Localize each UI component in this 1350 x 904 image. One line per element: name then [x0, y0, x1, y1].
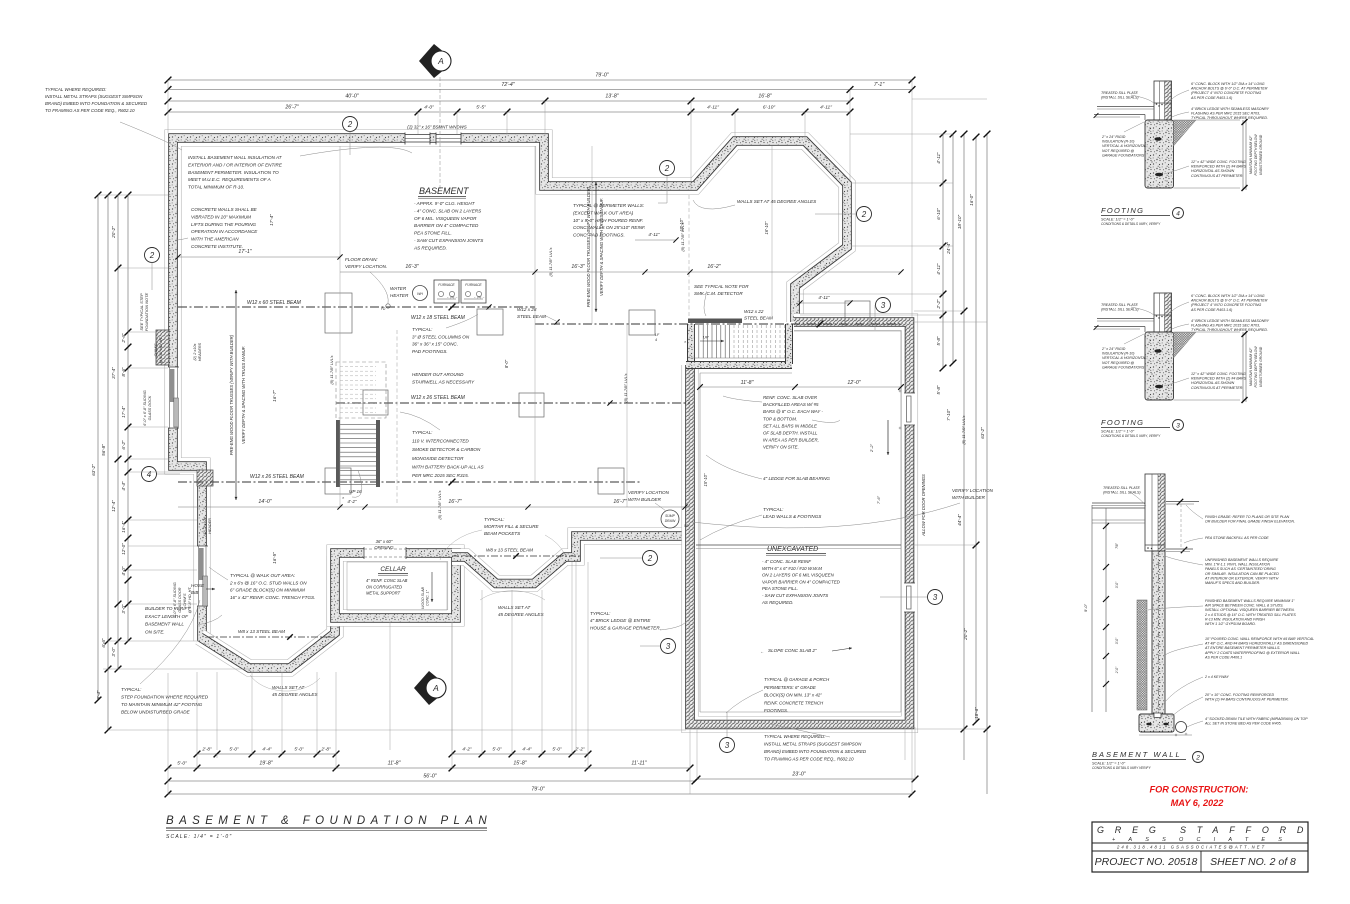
svg-text:TYPICAL @ GARAGE & PORCH: TYPICAL @ GARAGE & PORCH — [764, 677, 830, 682]
svg-text:3'-0": 3'-0" — [1115, 637, 1119, 644]
svg-text:NOT REQUIRED @: NOT REQUIRED @ — [1102, 149, 1135, 153]
svg-text:HOSE: HOSE — [191, 583, 205, 588]
svg-text:WITH THE AMERICAN: WITH THE AMERICAN — [191, 237, 239, 242]
svg-text:CHIM’S: CHIM’S — [154, 343, 158, 357]
svg-text:CONCRETE INSTITUTE.: CONCRETE INSTITUTE. — [191, 244, 243, 249]
svg-text:- SAW CUT EXPANSION JOINTS: - SAW CUT EXPANSION JOINTS — [762, 593, 828, 598]
svg-text:2: 2 — [861, 210, 867, 219]
svg-text:OR BUILDER FOR FINAL GRADE FIN: OR BUILDER FOR FINAL GRADE FINISH ELEVAT… — [1205, 520, 1295, 524]
svg-text:4'-0": 4'-0" — [424, 105, 434, 111]
svg-text:TREATED SILL PLATE: TREATED SILL PLATE — [1101, 303, 1139, 307]
svg-text:UNDISTURBED GROUND: UNDISTURBED GROUND — [1259, 134, 1263, 175]
svg-text:4'-0": 4'-0" — [121, 566, 126, 576]
svg-text:7'-6": 7'-6" — [876, 495, 881, 504]
svg-text:BRAND) EMBED INTO FOUNDATION &: BRAND) EMBED INTO FOUNDATION & SECURED — [764, 749, 867, 754]
svg-text:W12 x 60 STEEL BEAM: W12 x 60 STEEL BEAM — [247, 300, 302, 306]
svg-text:2'-8": 2'-8" — [201, 747, 212, 752]
svg-text:2: 2 — [149, 251, 155, 260]
svg-text:PEA STONE FILL.: PEA STONE FILL. — [414, 231, 452, 236]
svg-text:AT 48" O.C. AND #4 BARS HORIZO: AT 48" O.C. AND #4 BARS HORIZONTALLY AS … — [1204, 642, 1309, 646]
svg-text:WITH BUILDER: WITH BUILDER — [952, 495, 986, 500]
svg-text:OR SIMILAR. INSULATION CAN BE: OR SIMILAR. INSULATION CAN BE PLACED — [1205, 572, 1279, 576]
svg-text:16'-3": 16'-3" — [405, 264, 419, 270]
svg-text:20'-2": 20'-2" — [111, 226, 116, 239]
svg-text:SCALE: 1/2" = 1'-0": SCALE: 1/2" = 1'-0" — [1101, 218, 1135, 222]
svg-text:16'-8": 16'-8" — [758, 94, 772, 100]
svg-text:STAIRWELL AS NECESSARY: STAIRWELL AS NECESSARY — [412, 379, 475, 384]
svg-text:4" RENF. CONC SLAB: 4" RENF. CONC SLAB — [366, 578, 408, 583]
svg-text:CONTINUOUS AT PERIMETER.: CONTINUOUS AT PERIMETER. — [1191, 174, 1243, 178]
svg-text:SUMP: SUMP — [665, 514, 676, 518]
svg-text:EXTERIOR AND / OR INTERIOR OF: EXTERIOR AND / OR INTERIOR OF ENTIRE — [188, 162, 283, 167]
svg-text:16'-7": 16'-7" — [613, 499, 627, 505]
svg-text:TYPICAL THROUGHOUT WHERE REQUI: TYPICAL THROUGHOUT WHERE REQUIRED. — [1191, 328, 1268, 332]
svg-text:AS PER CODE R403.1.6): AS PER CODE R403.1.6) — [1190, 96, 1232, 100]
svg-text:TYPICAL:: TYPICAL: — [121, 687, 142, 692]
svg-text:2 x 4 STUDS @ 16" O.C. WITH T: 2 x 4 STUDS @ 16" O.C. WITH TREATED SILL… — [1204, 613, 1296, 617]
svg-text:REINFORCED WITH (2) #4 BARS: REINFORCED WITH (2) #4 BARS — [1191, 165, 1247, 169]
svg-text:15'-8": 15'-8" — [513, 761, 527, 767]
svg-text:6'-10": 6'-10" — [936, 208, 941, 220]
svg-text:24'-4": 24'-4" — [946, 242, 951, 255]
svg-text:16'-2": 16'-2" — [707, 264, 721, 270]
svg-text:HENDER OUT AROUND: HENDER OUT AROUND — [412, 372, 464, 377]
svg-text:WITH 1 1/2" GYPSUM BOARD.: WITH 1 1/2" GYPSUM BOARD. — [1205, 622, 1256, 626]
svg-text:VERTICAL & HORIZONTAL,: VERTICAL & HORIZONTAL, — [1102, 144, 1148, 148]
svg-text:OF 6 MIL. VISQUEEN VAPOR: OF 6 MIL. VISQUEEN VAPOR — [414, 216, 477, 221]
svg-text:PEA STONE FILL.: PEA STONE FILL. — [762, 586, 798, 591]
svg-text:3: 3 — [666, 642, 671, 651]
svg-text:2: 2 — [647, 554, 653, 563]
svg-text:PAD FOOTINGS.: PAD FOOTINGS. — [412, 349, 448, 354]
svg-text:A: A — [437, 56, 444, 66]
svg-text:- 4" CONC. SLAB REINF: - 4" CONC. SLAB REINF — [762, 559, 811, 564]
svg-text:4'-11": 4'-11" — [936, 152, 941, 164]
svg-text:2'-8": 2'-8" — [320, 747, 331, 752]
svg-text:13'-8": 13'-8" — [605, 94, 619, 100]
svg-text:W8 x 13 STEEL BEAM: W8 x 13 STEEL BEAM — [486, 548, 533, 553]
svg-text:TYPICAL:: TYPICAL: — [412, 430, 433, 435]
svg-text:36" x 60": 36" x 60" — [376, 539, 393, 544]
svg-text:4'-11": 4'-11" — [820, 105, 832, 111]
svg-text:(2) 2 x10s: (2) 2 x10s — [203, 517, 207, 534]
svg-text:GREG STAFFORD: GREG STAFFORD — [1097, 825, 1314, 835]
svg-text:4'-11": 4'-11" — [707, 105, 719, 111]
svg-text:INSTALL OPTIONAL VISQUEEN BARR: INSTALL OPTIONAL VISQUEEN BARRIER BETWEE… — [1205, 608, 1295, 612]
svg-text:8'-6": 8'-6" — [121, 367, 126, 377]
svg-text:TOTAL MINIMUM OF R-10.: TOTAL MINIMUM OF R-10. — [188, 185, 244, 190]
svg-text:10" x 9'-0" HIGH POURED REINF.: 10" x 9'-0" HIGH POURED REINF. — [573, 218, 644, 223]
svg-text:OPENING: OPENING — [374, 545, 394, 550]
svg-text:6'-10": 6'-10" — [763, 105, 776, 111]
svg-text:2'-2": 2'-2" — [574, 747, 585, 752]
svg-text:3" Ø STEEL COLUMNS ON: 3" Ø STEEL COLUMNS ON — [412, 334, 470, 339]
svg-text:← (m) →: ← (m) → — [447, 295, 459, 299]
svg-text:GLASS DOOR: GLASS DOOR — [178, 587, 182, 612]
svg-text:MANUF’S SPECS AND BUILDER.: MANUF’S SPECS AND BUILDER. — [1205, 581, 1260, 585]
svg-text:SHEET NO. 2 of 8: SHEET NO. 2 of 8 — [1210, 856, 1296, 868]
svg-text:CHIM’S: CHIM’S — [183, 593, 187, 607]
svg-text:R-13 MIN. INSULATION AND FINIS: R-13 MIN. INSULATION AND FINISH — [1205, 617, 1265, 621]
svg-text:RENF. CONC. SLAB OVER: RENF. CONC. SLAB OVER — [763, 395, 818, 400]
svg-text:19'-8": 19'-8" — [259, 761, 273, 767]
svg-text:FURNACE: FURNACE — [465, 283, 482, 287]
svg-text:VERIFY ON SITE.: VERIFY ON SITE. — [763, 445, 799, 450]
svg-text:METAL SUPPORT: METAL SUPPORT — [366, 591, 401, 596]
svg-text:63'-2": 63'-2" — [91, 464, 96, 476]
svg-text:REINF. CONCRETE TRENCH: REINF. CONCRETE TRENCH — [764, 700, 824, 705]
svg-text:BASEMENT & FOUNDATION PLAN: BASEMENT & FOUNDATION PLAN — [166, 815, 492, 827]
svg-text:14'-0": 14'-0" — [258, 499, 272, 505]
svg-text:- APPRX. 9'-0" CLG. HEIGHT: - APPRX. 9'-0" CLG. HEIGHT — [414, 201, 476, 206]
svg-text:3'-0": 3'-0" — [121, 604, 126, 614]
svg-text:4'-11": 4'-11" — [818, 295, 830, 300]
svg-text:W12 x 28: W12 x 28 — [517, 307, 537, 312]
svg-text:2 x 6's @ 16" O.C. STUD WALLS: 2 x 6's @ 16" O.C. STUD WALLS ON — [229, 580, 307, 585]
svg-text:HORIZONTAL AS SHOWN: HORIZONTAL AS SHOWN — [1191, 169, 1235, 173]
svg-text:SLOPE CONC SLAB 2": SLOPE CONC SLAB 2" — [768, 648, 817, 653]
svg-text:3'-0": 3'-0" — [111, 647, 116, 657]
svg-text:3: 3 — [881, 301, 886, 310]
svg-text:NOT REQUIRED @: NOT REQUIRED @ — [1102, 361, 1135, 365]
svg-text:3: 3 — [1176, 422, 1180, 429]
svg-text:4'-4": 4'-4" — [522, 747, 532, 752]
svg-text:CONC. WALLS ON 25"x10" REINF.: CONC. WALLS ON 25"x10" REINF. — [573, 225, 646, 230]
svg-text:5'-0": 5'-0" — [229, 747, 239, 752]
svg-text:2" x 24" RIGID: 2" x 24" RIGID — [1101, 135, 1126, 139]
svg-text:63'-2": 63'-2" — [980, 427, 985, 439]
svg-text:4" SOCKED DRAIN TILE WITH FABR: 4" SOCKED DRAIN TILE WITH FABRIC (MIRADR… — [1205, 717, 1308, 721]
svg-text:SD: SD — [684, 524, 689, 528]
svg-text:FOOTING DEPTH BELOW: FOOTING DEPTH BELOW — [1254, 346, 1258, 388]
svg-text:W12 x 26 STEEL BEAM: W12 x 26 STEEL BEAM — [411, 395, 466, 401]
svg-text:12'-4": 12'-4" — [111, 500, 116, 512]
svg-text:ON 2 LAYERS OF 6 MIL VISQUEEN: ON 2 LAYERS OF 6 MIL VISQUEEN — [762, 573, 835, 578]
svg-text:INSTALL BASEMENT WALL INSULATI: INSTALL BASEMENT WALL INSULATION AT — [188, 155, 283, 160]
svg-text:TYPICAL:: TYPICAL: — [484, 517, 505, 522]
svg-text:TREATED SILL PLATE: TREATED SILL PLATE — [1101, 91, 1139, 95]
svg-text:(INSTALL SILL SEALS): (INSTALL SILL SEALS) — [1103, 491, 1141, 495]
svg-text:HEATER: HEATER — [390, 293, 409, 298]
svg-text:16'-5": 16'-5" — [272, 552, 277, 564]
svg-text:W8 x 13 STEEL BEAM: W8 x 13 STEEL BEAM — [238, 629, 285, 634]
svg-text:CONTINUOUS AT PERIMETER.: CONTINUOUS AT PERIMETER. — [1191, 386, 1243, 390]
svg-text:6" GRADE BLOCK(S) ON MINIMUM: 6" GRADE BLOCK(S) ON MINIMUM — [230, 588, 305, 593]
svg-text:BASEMENT WALL: BASEMENT WALL — [145, 622, 184, 627]
svg-text:(2) 2 x10s: (2) 2 x10s — [193, 343, 197, 360]
svg-text:MORTAR FILL & SECURE: MORTAR FILL & SECURE — [484, 524, 540, 529]
svg-text:5'-5": 5'-5" — [476, 105, 486, 111]
svg-text:7'-1": 7'-1" — [874, 82, 885, 88]
svg-text:2: 2 — [1195, 754, 1200, 761]
svg-text:UP: UP — [703, 335, 709, 340]
svg-text:17'-4": 17'-4" — [121, 406, 126, 418]
svg-text:TYPICAL WHERE REQUIRED:: TYPICAL WHERE REQUIRED: — [45, 87, 107, 92]
svg-text:FOR CONSTRUCTION:: FOR CONSTRUCTION: — [1149, 785, 1248, 795]
svg-text:BLOCK(S) ON MIN. 13" x 42": BLOCK(S) ON MIN. 13" x 42" — [764, 693, 822, 698]
svg-text:11'-8": 11'-8" — [741, 380, 755, 386]
svg-text:6'-2": 6'-2" — [121, 440, 126, 450]
svg-text:10'-10": 10'-10" — [679, 218, 684, 232]
svg-text:72'-4": 72'-4" — [501, 82, 515, 88]
svg-text:5'-0": 5'-0" — [552, 747, 562, 752]
svg-text:6'-4": 6'-4" — [96, 690, 101, 700]
svg-text:(INSTALL SILL SEALS): (INSTALL SILL SEALS) — [1101, 96, 1139, 100]
svg-text:PANELS SUCH AS ‘CERTAINTEED’ D: PANELS SUCH AS ‘CERTAINTEED’ DRING — [1205, 567, 1276, 571]
svg-text:FURNACE: FURNACE — [438, 283, 455, 287]
svg-text:PER MRC 2015 SEC R315.: PER MRC 2015 SEC R315. — [412, 473, 469, 478]
svg-text:LIFTS DURING THE POURING: LIFTS DURING THE POURING — [191, 222, 257, 227]
svg-text:(5) 11-7/8" LVL’s: (5) 11-7/8" LVL’s — [961, 415, 966, 444]
svg-text:7/8": 7/8" — [1115, 542, 1119, 548]
svg-text:TO MAINTAIN MINIMUM 42" FOOTIN: TO MAINTAIN MINIMUM 42" FOOTING — [121, 702, 203, 707]
svg-text:TYPICAL:: TYPICAL: — [412, 327, 433, 332]
svg-text:(PROJECT 4" INTO CONCRETE FOOT: (PROJECT 4" INTO CONCRETE FOOTING — [1191, 303, 1261, 307]
svg-text:@ 6'-8" HD. HT.: @ 6'-8" HD. HT. — [188, 587, 192, 614]
svg-text:12'-0": 12'-0" — [847, 380, 861, 386]
svg-text:MAINTAIN MINIMUM 42": MAINTAIN MINIMUM 42" — [1249, 347, 1253, 386]
svg-text:BARRIER ON 4" COMPACTED: BARRIER ON 4" COMPACTED — [414, 223, 479, 228]
svg-text:BARS @ 8" O.C. EACH WAY -: BARS @ 8" O.C. EACH WAY - — [763, 409, 823, 414]
svg-text:AT INTERIOR OR EXTERIOR. VERIF: AT INTERIOR OR EXTERIOR. VERIFY WITH — [1204, 576, 1279, 580]
svg-text:4" BRICK LEDGE WITH SEAMLESS M: 4" BRICK LEDGE WITH SEAMLESS MASONRY — [1191, 319, 1270, 323]
svg-text:CONC. 1": CONC. 1" — [426, 589, 430, 606]
svg-text:STEP FOUNDATION WHERE REQUIRED: STEP FOUNDATION WHERE REQUIRED — [121, 695, 209, 700]
svg-text:FD: FD — [381, 307, 386, 311]
svg-text:5'-0": 5'-0" — [177, 761, 187, 767]
svg-text:WALLS SET AT 45 DEGREE ANGLES: WALLS SET AT 45 DEGREE ANGLES — [737, 199, 817, 204]
svg-text:3: 3 — [725, 741, 730, 750]
svg-text:FINISHED BASEMENT WALLS REQUIR: FINISHED BASEMENT WALLS REQUIRE MINIMUM … — [1205, 599, 1295, 603]
svg-text:ANCHOR BOLTS @ 6'-0" O.C. AT P: ANCHOR BOLTS @ 6'-0" O.C. AT PERIMETER — [1190, 299, 1268, 303]
svg-text:W12 x 18 STEEL BEAM: W12 x 18 STEEL BEAM — [411, 315, 466, 321]
svg-text:WATER: WATER — [390, 286, 407, 291]
svg-text:4" LEDGE FOR SLAB BEARING: 4" LEDGE FOR SLAB BEARING — [763, 476, 830, 481]
svg-text:FINISH GRADE: REFER TO PLANS: FINISH GRADE: REFER TO PLANS OR SITE PLA… — [1205, 515, 1290, 519]
svg-text:BRAND) EMBED INTO FOUNDATION &: BRAND) EMBED INTO FOUNDATION & SECURED — [45, 101, 148, 106]
svg-text:3'-0": 3'-0" — [1115, 581, 1119, 588]
svg-text:9'-0": 9'-0" — [1083, 603, 1088, 612]
svg-text:4'-2": 4'-2" — [347, 499, 357, 504]
svg-text:248.318.4811 GSASSOCIATES: 248.318.4811 GSASSOCIATES@ATT.NET — [1116, 845, 1266, 850]
svg-text:AS PER CODE R406.1: AS PER CODE R406.1 — [1204, 655, 1242, 659]
svg-text:EXACT LENGTH OF: EXACT LENGTH OF — [145, 614, 189, 619]
svg-text:INSULATION (R-10): INSULATION (R-10) — [1102, 140, 1134, 144]
svg-text:40'-0": 40'-0" — [345, 94, 359, 100]
svg-text:15'-10": 15'-10" — [703, 473, 708, 487]
svg-text:MONOXIDE DETECTOR: MONOXIDE DETECTOR — [412, 456, 464, 461]
svg-text:SMK./C.M. DETECTOR: SMK./C.M. DETECTOR — [694, 291, 743, 296]
svg-text:CONCRETE WALLS SHALL BE: CONCRETE WALLS SHALL BE — [191, 207, 258, 212]
svg-text:45 DEGREE ANGLES: 45 DEGREE ANGLES — [272, 692, 318, 697]
svg-text:5'-8": 5'-8" — [936, 385, 941, 395]
svg-text:6'-6": 6'-6" — [101, 638, 106, 648]
svg-text:79'-0": 79'-0" — [595, 73, 609, 79]
svg-text:4'-4": 4'-4" — [262, 747, 272, 752]
svg-text:FOUNDATION NOTE: FOUNDATION NOTE — [144, 292, 149, 331]
svg-text:4" BRICK LEDGE @ ENTIRE: 4" BRICK LEDGE @ ENTIRE — [590, 618, 651, 623]
svg-text:VAPOR BARRIER ON 4" COMPACTED: VAPOR BARRIER ON 4" COMPACTED — [762, 579, 841, 584]
svg-text:HEADER: HEADER — [208, 518, 212, 534]
svg-text:OPERATION IN ACCORDANCE: OPERATION IN ACCORDANCE — [191, 229, 258, 234]
svg-text:VIBRATED IN 20" MAXIMUM: VIBRATED IN 20" MAXIMUM — [191, 214, 251, 219]
svg-text:TYPICAL @ WALK OUT AREA:: TYPICAL @ WALK OUT AREA: — [230, 573, 296, 578]
svg-text:- SAW CUT EXPANSION JOINTS: - SAW CUT EXPANSION JOINTS — [414, 238, 484, 243]
svg-text:18'-10": 18'-10" — [957, 215, 962, 230]
svg-text:UP 16: UP 16 — [349, 489, 362, 494]
svg-text:LEAD WALLS & FOOTINGS: LEAD WALLS & FOOTINGS — [763, 514, 822, 519]
svg-text:16'-0": 16'-0" — [969, 194, 974, 206]
svg-text:GARAGE FOUNDATIONS: GARAGE FOUNDATIONS — [1102, 365, 1145, 369]
svg-text:GLASS DOCK: GLASS DOCK — [148, 395, 152, 420]
svg-text:SET ALL BARS IN MIDDLE: SET ALL BARS IN MIDDLE — [763, 423, 817, 428]
svg-text:TYPICAL:: TYPICAL: — [763, 507, 784, 512]
svg-text:11'-8": 11'-8" — [388, 761, 402, 767]
svg-text:BACKFILLED AREAS W/ #5: BACKFILLED AREAS W/ #5 — [763, 402, 819, 407]
svg-text:AS REQUIRED.: AS REQUIRED. — [761, 600, 793, 605]
svg-text:2: 2 — [347, 120, 353, 129]
svg-text:AIR SPACE BETWEEN CONC. WALL &: AIR SPACE BETWEEN CONC. WALL & STUDS. — [1204, 604, 1283, 608]
svg-text:7'-10": 7'-10" — [946, 409, 951, 421]
svg-text:MAINTAIN MINIMUM 42": MAINTAIN MINIMUM 42" — [1249, 135, 1253, 174]
svg-text:37'-4": 37'-4" — [111, 367, 116, 379]
svg-text:AT ENTIRE BASEMENT PERIMETER W: AT ENTIRE BASEMENT PERIMETER WALLS. — [1204, 646, 1280, 650]
svg-text:TOP & BOTTOM.: TOP & BOTTOM. — [763, 416, 797, 421]
svg-text:FOOTING: FOOTING — [1101, 206, 1144, 215]
svg-text:6" CONC. BLOCK WITH 1/2" DIA x: 6" CONC. BLOCK WITH 1/2" DIA x 14" LONG — [1191, 294, 1265, 298]
svg-text:(INSTALL SILL SEALS): (INSTALL SILL SEALS) — [1101, 308, 1139, 312]
svg-text:BEAM POCKETS: BEAM POCKETS — [484, 531, 521, 536]
svg-text:TYPICAL:: TYPICAL: — [590, 611, 611, 616]
svg-text:110 V. INTERCONNECTED: 110 V. INTERCONNECTED — [412, 439, 469, 444]
svg-text:12" x 42" WIDE CONC. FOOTING: 12" x 42" WIDE CONC. FOOTING — [1191, 160, 1246, 164]
svg-text:16'-7": 16'-7" — [448, 499, 462, 505]
svg-text:REINFORCED WITH (2) #4 BARS: REINFORCED WITH (2) #4 BARS — [1191, 377, 1247, 381]
svg-text:INSTALL METAL STRAPS (SUGGEST: INSTALL METAL STRAPS (SUGGEST SIMPSON — [45, 94, 143, 99]
svg-text:INSTALL METAL STRAPS (SUGGEST: INSTALL METAL STRAPS (SUGGEST SIMPSON — [764, 742, 862, 747]
svg-text:6'-0" x 6'-8" SLIDING: 6'-0" x 6'-8" SLIDING — [143, 390, 147, 425]
svg-text:23'-0": 23'-0" — [791, 772, 806, 778]
svg-text:FLASHING AS PER MRC 2015 SEC R: FLASHING AS PER MRC 2015 SEC R703, — [1191, 112, 1260, 116]
svg-text:MIN. 1"R-1.1 VINYL WALL INSULA: MIN. 1"R-1.1 VINYL WALL INSULATION — [1205, 563, 1270, 567]
svg-text:WH: WH — [417, 292, 423, 296]
svg-text:2: 2 — [664, 164, 670, 173]
svg-text:VERIFY LOCATION.: VERIFY LOCATION. — [345, 264, 387, 269]
svg-text:4'-11": 4'-11" — [936, 263, 941, 275]
svg-text:CONDITIONS & DETAILS VARY VERI: CONDITIONS & DETAILS VARY VERIFY — [1092, 766, 1151, 770]
svg-text:45 DEGREE ANGLES: 45 DEGREE ANGLES — [498, 612, 544, 617]
svg-text:16'-4": 16'-4" — [121, 521, 126, 533]
svg-text:BASEMENT: BASEMENT — [419, 186, 470, 196]
svg-text:AS REQUIRED.: AS REQUIRED. — [413, 245, 447, 250]
svg-text:FLASHING AS PER MRC 2015 SEC R: FLASHING AS PER MRC 2015 SEC R703, — [1191, 324, 1260, 328]
svg-text:8'-0": 8'-0" — [504, 359, 509, 368]
svg-text:6" CONC. BLOCK WITH 1/2" DIA x: 6" CONC. BLOCK WITH 1/2" DIA x 14" LONG — [1191, 82, 1265, 86]
svg-text:VERIFY DEPTH & SPACING WITH TR: VERIFY DEPTH & SPACING WITH TRUSS MANUF. — [241, 346, 246, 444]
svg-text:WITH BUILDER: WITH BUILDER — [628, 497, 662, 502]
svg-text:4: 4 — [147, 470, 152, 479]
svg-text:ANCHOR BOLTS @ 6'-0" O.C. AT P: ANCHOR BOLTS @ 6'-0" O.C. AT PERIMETER — [1190, 87, 1268, 91]
svg-text:MEET M.U.E.C. REQUIREMENTS OF: MEET M.U.E.C. REQUIREMENTS OF A — [188, 177, 271, 182]
svg-text:VERIFY LOCATION: VERIFY LOCATION — [628, 490, 670, 495]
svg-text:ON SITE.: ON SITE. — [145, 629, 165, 634]
svg-text:(PROJECT 4" INTO CONCRETE FOOT: (PROJECT 4" INTO CONCRETE FOOTING — [1191, 91, 1261, 95]
svg-text:STEEL BEAM: STEEL BEAM — [517, 314, 546, 319]
svg-text:WALLS SET AT: WALLS SET AT — [498, 605, 532, 610]
svg-text:(5) 11-7/8" LVL’s: (5) 11-7/8" LVL’s — [437, 490, 442, 519]
svg-text:AS PER CODE R403.1.6): AS PER CODE R403.1.6) — [1190, 308, 1232, 312]
svg-text:W12 x 26 STEEL BEAM: W12 x 26 STEEL BEAM — [250, 474, 305, 480]
svg-text:SEE TYPICAL NOTE FOR: SEE TYPICAL NOTE FOR — [694, 284, 749, 289]
svg-text:16'-3": 16'-3" — [571, 264, 585, 270]
svg-text:A: A — [432, 683, 439, 693]
svg-text:UNEXCAVATED: UNEXCAVATED — [767, 546, 818, 553]
svg-text:WITH (2) #4 BARS CONTINUOUS AT: WITH (2) #4 BARS CONTINUOUS AT PERIMETER… — [1205, 698, 1289, 702]
svg-text:BELOW UNDISTURBED GRADE: BELOW UNDISTURBED GRADE — [121, 710, 191, 715]
svg-text:STEEL BEAM: STEEL BEAM — [744, 316, 773, 321]
svg-text:79'-0": 79'-0" — [531, 787, 545, 793]
svg-text:HORIZONTAL AS SHOWN: HORIZONTAL AS SHOWN — [1191, 381, 1235, 385]
svg-text:20'-2": 20'-2" — [963, 628, 968, 641]
svg-text:INSULATION (R-10): INSULATION (R-10) — [1102, 352, 1134, 356]
svg-text:BIB: BIB — [191, 590, 198, 595]
svg-text:UNDISTURBED GROUND: UNDISTURBED GROUND — [1259, 346, 1263, 387]
svg-text:WITH BATTERY BACK-UP ALL AS: WITH BATTERY BACK-UP ALL AS — [412, 464, 484, 469]
svg-text:SCALE: 1/4" = 1'-0": SCALE: 1/4" = 1'-0" — [166, 834, 232, 840]
svg-text:5'-8": 5'-8" — [936, 336, 941, 346]
svg-text:16" x 42" REINF. CONC. TRENCH: 16" x 42" REINF. CONC. TRENCH FTGS. — [230, 595, 315, 600]
svg-text:16'-10": 16'-10" — [764, 221, 769, 235]
svg-text:IN AREA AS PER BUILDER,: IN AREA AS PER BUILDER, — [763, 438, 819, 443]
svg-text:16'-7": 16'-7" — [272, 390, 277, 402]
svg-text:TYPICAL THROUGHOUT WHERE REQUI: TYPICAL THROUGHOUT WHERE REQUIRED. — [1191, 116, 1268, 120]
svg-text:WITH 6" x 6" #10 / #10 W.W.M: WITH 6" x 6" #10 / #10 W.W.M — [762, 566, 822, 571]
svg-text:CELLAR: CELLAR — [380, 566, 406, 573]
svg-text:2'-2": 2'-2" — [869, 443, 874, 453]
svg-text:TYPICAL WHERE REQUIRED:: TYPICAL WHERE REQUIRED: — [764, 734, 826, 739]
svg-text:20" x 10" CONC. FOOTING REINFO: 20" x 10" CONC. FOOTING REINFORCED — [1204, 693, 1274, 697]
svg-text:ALLOW FOR DOOR OPENINGS: ALLOW FOR DOOR OPENINGS — [921, 474, 926, 537]
svg-text:FOOTING DEPTH BELOW: FOOTING DEPTH BELOW — [1254, 134, 1258, 176]
svg-text:5'-0": 5'-0" — [492, 747, 502, 752]
svg-text:TREATED SILL PLATE: TREATED SILL PLATE — [1103, 486, 1141, 490]
svg-text:(2) 32" x 16" BSMNT WNDWS: (2) 32" x 16" BSMNT WNDWS — [407, 125, 467, 130]
svg-text:WOOD SLAB: WOOD SLAB — [421, 587, 425, 609]
svg-text:17'-4": 17'-4" — [269, 214, 274, 226]
svg-text:26'-7": 26'-7" — [284, 105, 299, 111]
svg-text:36" x 36" x 15" CONC.: 36" x 36" x 15" CONC. — [412, 342, 458, 347]
svg-text:←: ← — [760, 649, 764, 654]
svg-text:(5) 11-7/8" LVL’s: (5) 11-7/8" LVL’s — [329, 355, 334, 384]
svg-text:BASEMENT PERIMETER. INSULATIO: BASEMENT PERIMETER. INSULATION TO — [188, 170, 279, 175]
svg-text:4'-4": 4'-4" — [121, 481, 126, 491]
svg-text:12'-0": 12'-0" — [121, 543, 126, 555]
svg-text:4" BRICK LEDGE WITH SEAMLESS M: 4" BRICK LEDGE WITH SEAMLESS MASONRY — [1191, 107, 1270, 111]
svg-text:TYPICAL @ PERIMETER WALLS:: TYPICAL @ PERIMETER WALLS: — [573, 203, 645, 208]
svg-text:CONC. PAD FOOTINGS.: CONC. PAD FOOTINGS. — [573, 233, 625, 238]
svg-text:56'-0": 56'-0" — [423, 774, 437, 780]
svg-text:SMOKE DETECTOR & CARBON: SMOKE DETECTOR & CARBON — [412, 447, 481, 452]
svg-text:3: 3 — [933, 593, 938, 602]
svg-text:MAY 6, 2022: MAY 6, 2022 — [1171, 798, 1225, 808]
svg-text:5'-0": 5'-0" — [294, 747, 304, 752]
svg-text:HEADERS: HEADERS — [198, 342, 202, 361]
svg-text:TO FRAMING AS PER CODE REQ., R: TO FRAMING AS PER CODE REQ., R602.10 — [45, 108, 135, 113]
svg-text:@ 6'-8" HD. HT.: @ 6'-8" HD. HT. — [159, 337, 163, 364]
svg-text:UNFINISHED BASEMENT WALLS REQU: UNFINISHED BASEMENT WALLS REQUIRE — [1205, 558, 1279, 562]
svg-text:PROJECT NO. 20518: PROJECT NO. 20518 — [1095, 856, 1198, 868]
svg-text:DRAIN: DRAIN — [665, 519, 676, 523]
